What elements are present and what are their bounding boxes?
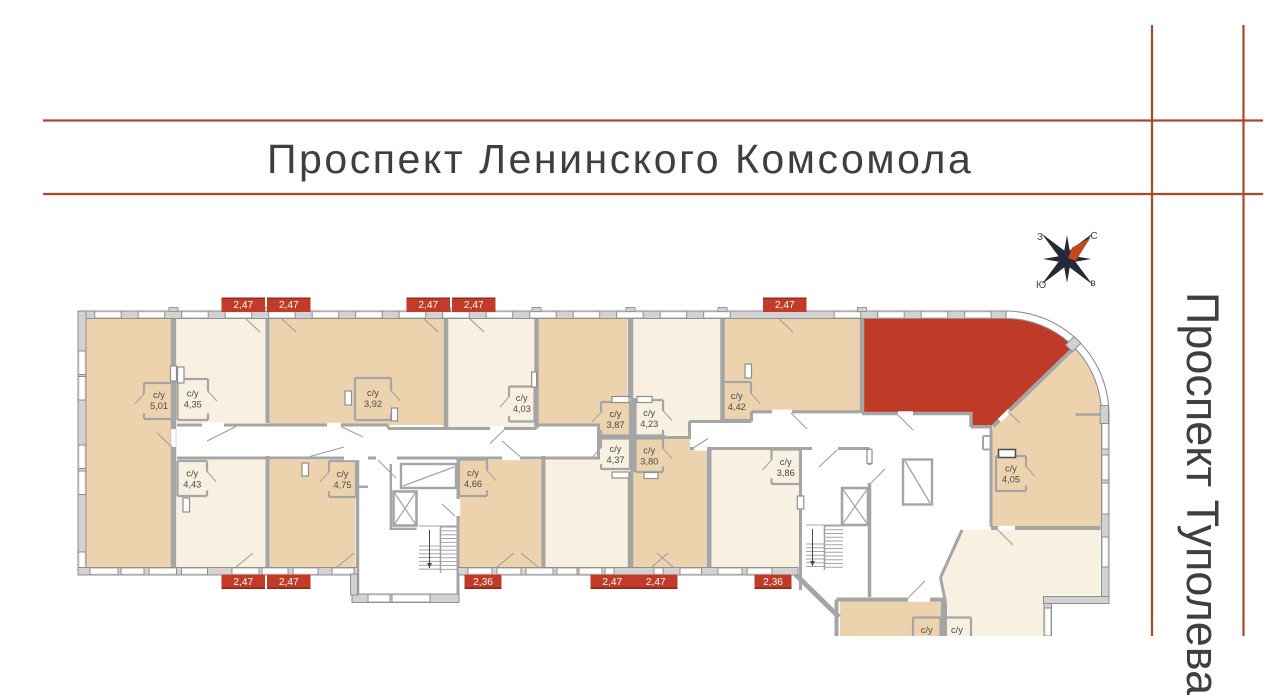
svg-text:с/у: с/у — [467, 468, 479, 478]
svg-text:3,87: 3,87 — [606, 420, 624, 430]
svg-text:4,42: 4,42 — [728, 402, 746, 412]
svg-text:с/у: с/у — [780, 457, 792, 467]
svg-text:4,37: 4,37 — [606, 455, 624, 465]
svg-text:с/у: с/у — [610, 444, 622, 454]
svg-text:с/у: с/у — [921, 625, 933, 635]
svg-text:с/у: с/у — [337, 469, 349, 479]
svg-text:5,01: 5,01 — [150, 401, 168, 411]
svg-text:4,35: 4,35 — [184, 400, 202, 410]
svg-text:с/у: с/у — [731, 391, 743, 401]
svg-text:с/у: с/у — [643, 445, 655, 455]
svg-text:3,92: 3,92 — [364, 399, 382, 409]
svg-text:2,47: 2,47 — [279, 300, 299, 311]
svg-text:3,86: 3,86 — [777, 468, 795, 478]
svg-text:с/у: с/у — [367, 388, 379, 398]
svg-text:2,47: 2,47 — [602, 577, 622, 588]
svg-text:Ю: Ю — [1036, 280, 1046, 291]
svg-text:2,47: 2,47 — [279, 577, 299, 588]
svg-text:2,47: 2,47 — [418, 300, 438, 311]
svg-text:2,47: 2,47 — [233, 577, 253, 588]
svg-text:2,36: 2,36 — [473, 577, 493, 588]
svg-text:4,03: 4,03 — [513, 404, 531, 414]
svg-text:с/у: с/у — [610, 409, 622, 419]
svg-text:с/у: с/у — [951, 625, 963, 635]
svg-text:с/у: с/у — [153, 390, 165, 400]
svg-text:в: в — [1090, 278, 1095, 289]
svg-text:с/у: с/у — [187, 389, 199, 399]
svg-text:2,47: 2,47 — [646, 577, 666, 588]
svg-text:4,23: 4,23 — [640, 419, 658, 429]
svg-text:3,80: 3,80 — [640, 456, 658, 466]
svg-text:с/у: с/у — [1005, 464, 1017, 474]
svg-text:2,47: 2,47 — [233, 300, 253, 311]
svg-text:З: З — [1037, 232, 1043, 243]
svg-text:2,47: 2,47 — [775, 300, 795, 311]
svg-text:с/у: с/у — [186, 469, 198, 479]
svg-text:4,66: 4,66 — [464, 479, 482, 489]
svg-text:2,47: 2,47 — [464, 300, 484, 311]
svg-text:С: С — [1090, 231, 1097, 242]
svg-text:4,75: 4,75 — [333, 480, 351, 490]
svg-text:с/у: с/у — [643, 408, 655, 418]
svg-text:2,36: 2,36 — [763, 577, 783, 588]
svg-text:4,05: 4,05 — [1002, 475, 1020, 485]
svg-text:с/у: с/у — [516, 393, 528, 403]
svg-text:4,43: 4,43 — [183, 480, 201, 490]
